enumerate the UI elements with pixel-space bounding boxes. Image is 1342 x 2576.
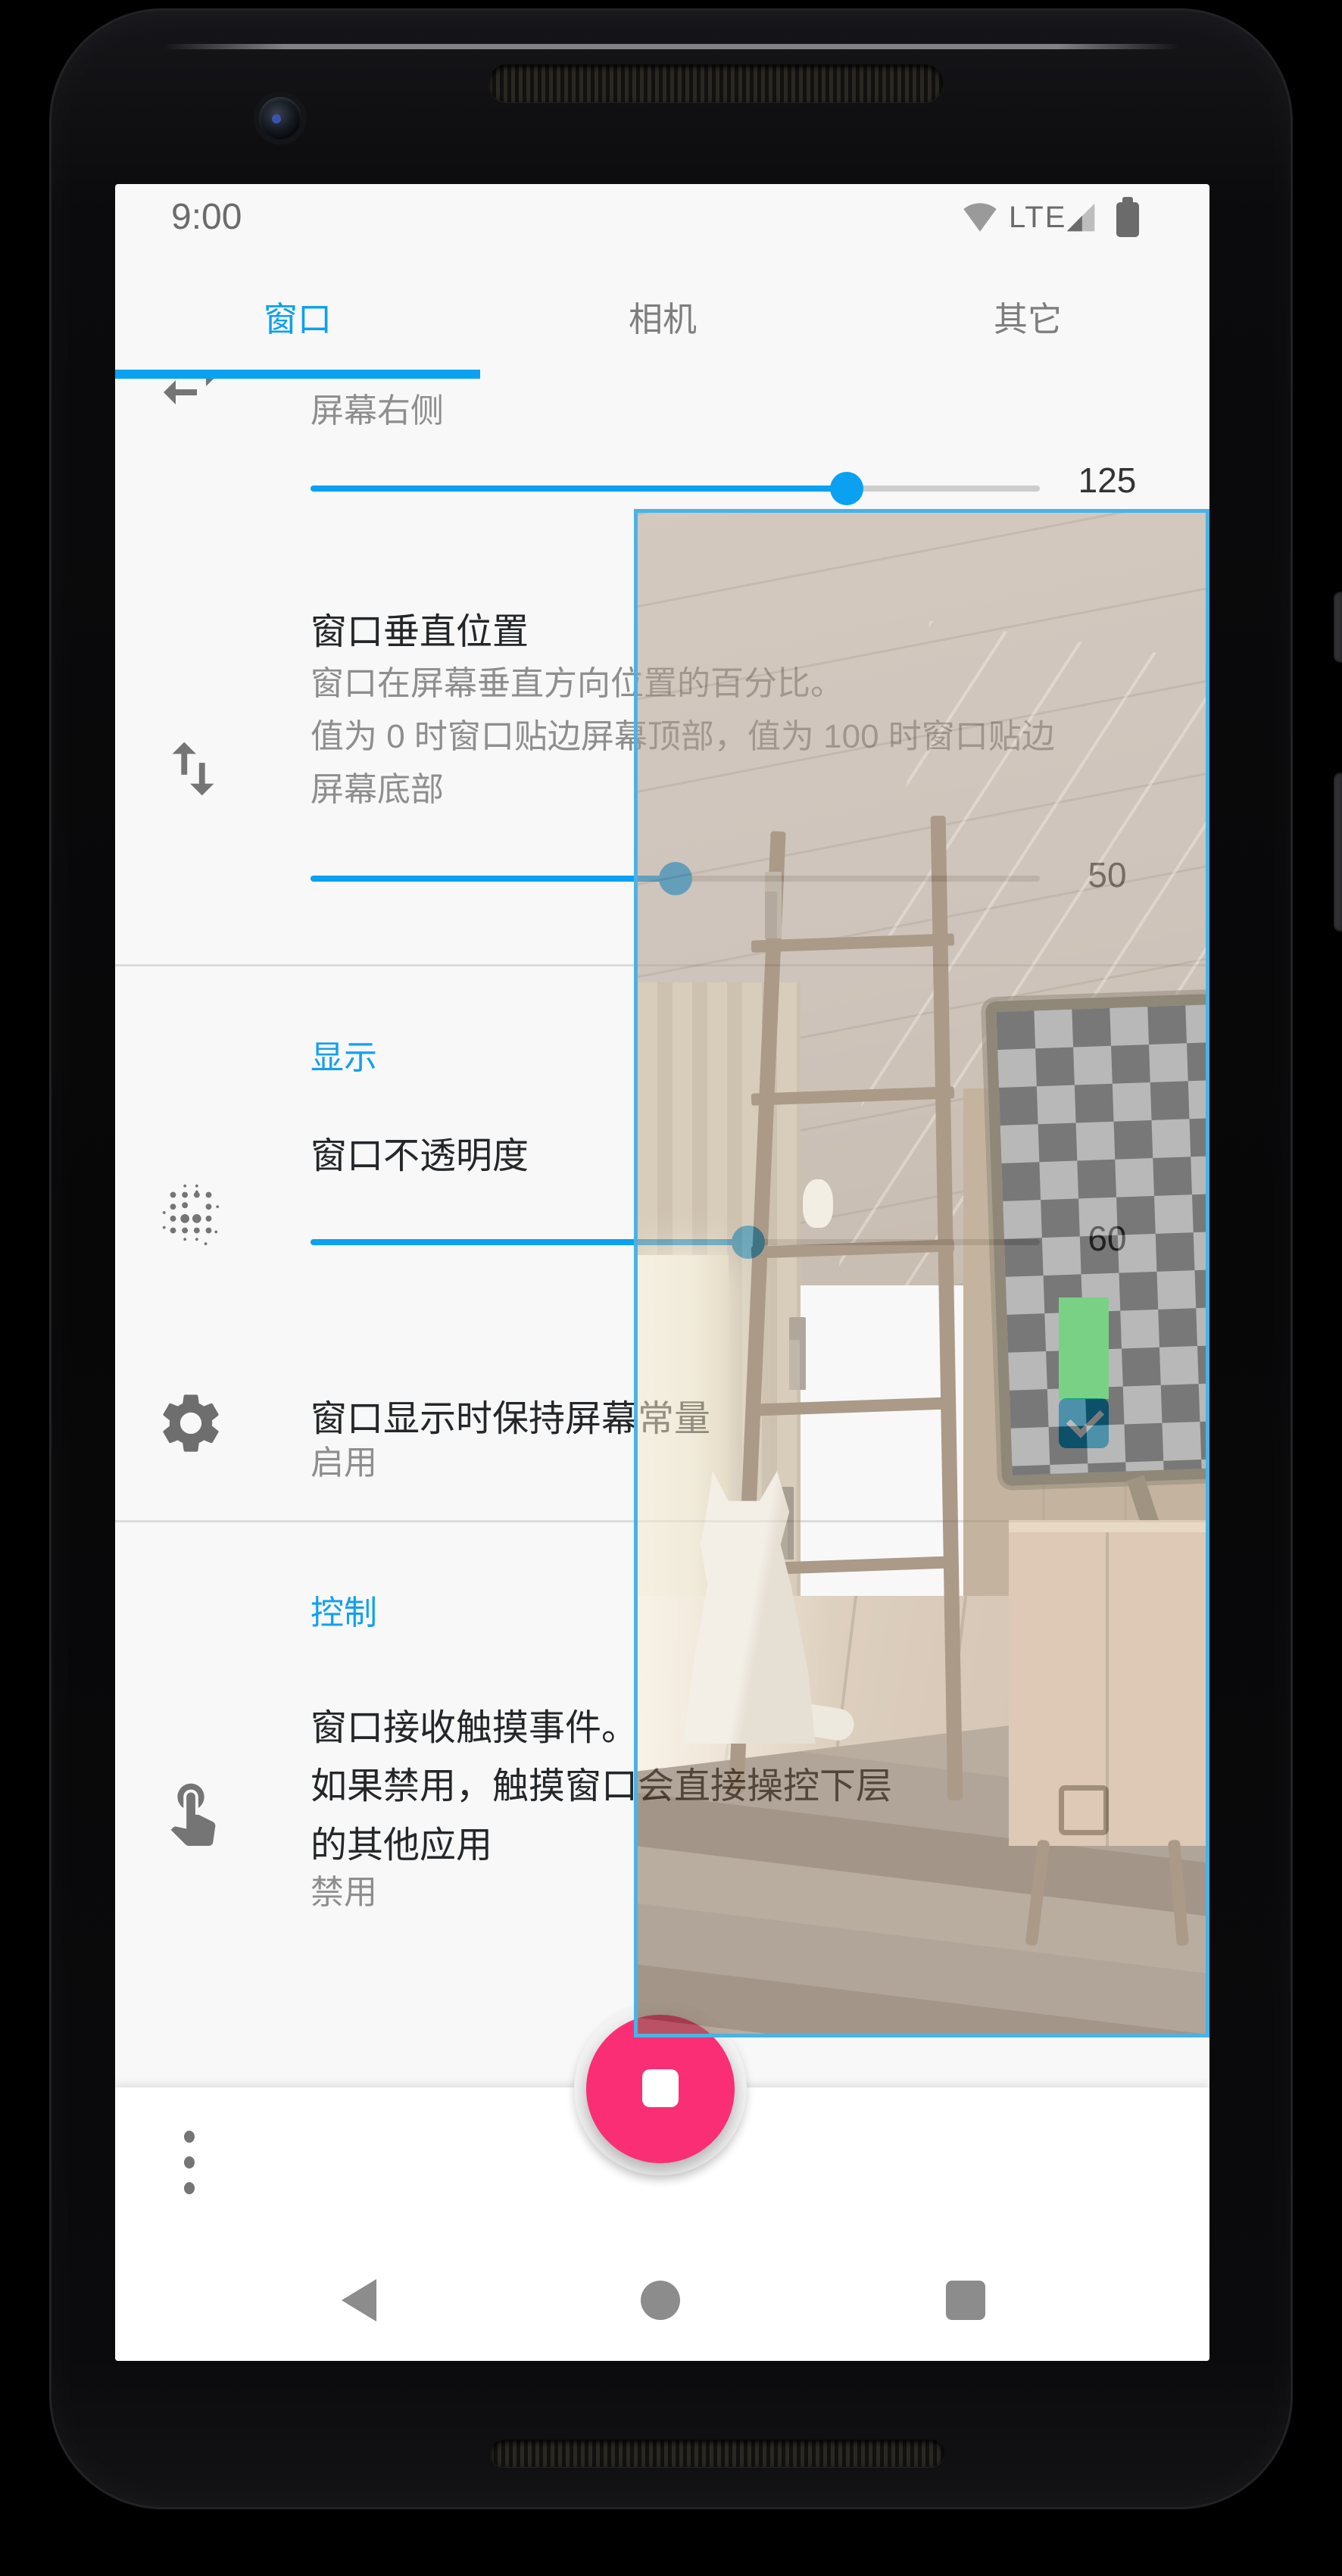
earpiece-speaker-grille bbox=[488, 64, 943, 102]
slider-fill bbox=[311, 876, 676, 882]
swap-vertical-icon bbox=[158, 733, 229, 804]
slider-fill bbox=[311, 486, 847, 492]
active-tab-underline bbox=[115, 370, 480, 379]
opacity-title: 窗口不透明度 bbox=[311, 1126, 529, 1179]
touch-events-title-line3: 的其他应用 bbox=[311, 1815, 492, 1868]
lte-label: LTE bbox=[1009, 201, 1066, 235]
vertical-position-desc-line3: 屏幕底部 bbox=[311, 762, 444, 810]
phone-top-rim-highlight bbox=[163, 44, 1179, 49]
scene-cabinet bbox=[1009, 1520, 1206, 1846]
battery-icon bbox=[1116, 202, 1139, 237]
cell-signal-icon bbox=[1063, 201, 1098, 234]
tab-bar: 窗口 相机 其它 bbox=[115, 267, 1209, 379]
nav-home-button[interactable] bbox=[641, 2281, 680, 2320]
scene-tv-checkerboard bbox=[996, 1004, 1206, 1475]
touch-app-icon bbox=[157, 1775, 228, 1846]
stop-icon bbox=[642, 2069, 679, 2107]
scene-vase bbox=[803, 1179, 833, 1228]
camera-preview-overlay[interactable] bbox=[634, 509, 1209, 2037]
scene-cat-body bbox=[660, 1471, 835, 1744]
tab-window[interactable]: 窗口 bbox=[115, 292, 480, 341]
slider-thumb[interactable] bbox=[830, 472, 863, 505]
horizontal-position-value: 125 bbox=[1050, 460, 1164, 501]
overflow-menu-button[interactable] bbox=[174, 2129, 204, 2199]
keep-screen-on-status: 启用 bbox=[311, 1435, 377, 1484]
bottom-speaker-grille bbox=[490, 2440, 944, 2467]
vertical-position-title: 窗口垂直位置 bbox=[311, 601, 529, 654]
touch-events-status: 禁用 bbox=[311, 1865, 377, 1913]
clock: 9:00 bbox=[171, 196, 242, 238]
wifi-icon bbox=[959, 198, 1001, 236]
nav-recents-button[interactable] bbox=[946, 2281, 985, 2320]
status-bar: 9:00 LTE bbox=[115, 184, 1209, 267]
scene-cat bbox=[660, 1471, 835, 1744]
horizontal-position-slider[interactable] bbox=[311, 486, 1040, 492]
nav-back-button[interactable] bbox=[342, 2279, 376, 2322]
swap-horizontal-icon bbox=[154, 379, 227, 420]
camera-preview-image bbox=[638, 513, 1206, 2034]
horizontal-position-value-label: 屏幕右侧 bbox=[311, 383, 444, 432]
stage: 9:00 LTE 窗口 相机 其它 屏幕右侧 bbox=[0, 0, 1342, 2576]
screen: 9:00 LTE 窗口 相机 其它 屏幕右侧 bbox=[115, 184, 1209, 2361]
volume-rocker bbox=[1334, 773, 1342, 932]
power-button bbox=[1334, 592, 1342, 663]
touch-events-title-line1: 窗口接收触摸事件。 bbox=[311, 1697, 638, 1750]
tab-camera[interactable]: 相机 bbox=[480, 292, 845, 341]
front-camera bbox=[259, 97, 301, 139]
scene-tv-green-patch bbox=[1059, 1297, 1109, 1399]
section-header-display: 显示 bbox=[311, 1030, 377, 1079]
gear-icon bbox=[155, 1388, 226, 1459]
section-header-control: 控制 bbox=[311, 1585, 377, 1634]
tab-other[interactable]: 其它 bbox=[845, 292, 1209, 341]
opacity-dots-icon bbox=[155, 1177, 226, 1248]
camera-lens-glint bbox=[272, 114, 281, 123]
